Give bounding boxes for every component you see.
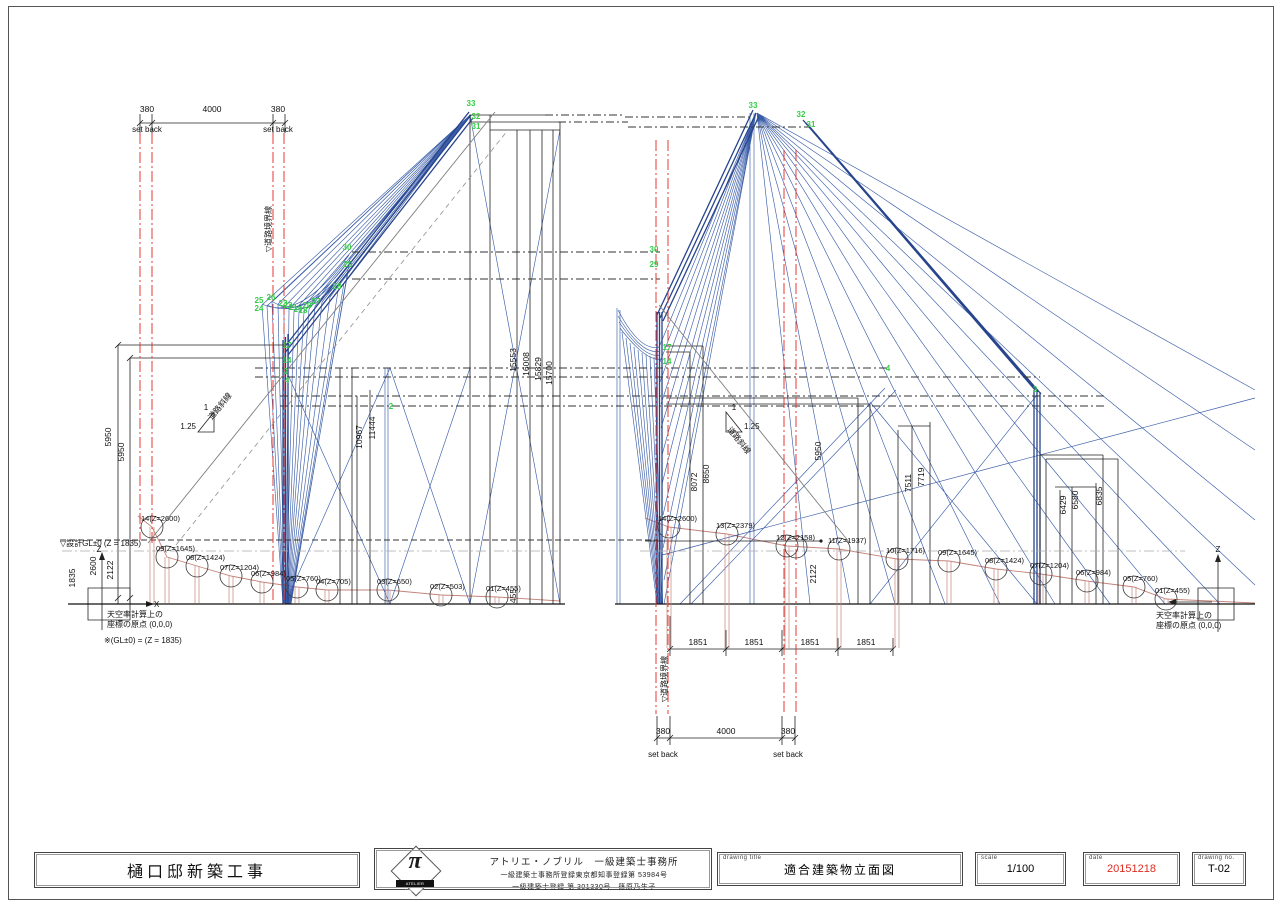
office-info: アトリエ・ノブリル 一級建築士事務所 一級建築士事務所登録東京都知事登録第 53…: [461, 852, 707, 892]
logo-banner: ATELIER NOMBRIL: [396, 880, 434, 887]
titleblock-scale-box: scale 1/100: [975, 852, 1066, 886]
titleblock-drawing-no-box: drawing no. T-02: [1192, 852, 1246, 886]
titleblock-drawing-title-box: drawing title 適合建築物立面図: [717, 852, 963, 886]
date-label: date: [1089, 855, 1103, 861]
scale-label: scale: [981, 855, 998, 861]
project-title: 樋口邸新築工事: [35, 853, 359, 887]
office-logo: π ATELIER NOMBRIL: [391, 846, 439, 894]
drawing-title-label: drawing title: [723, 855, 762, 861]
drawing-no-label: drawing no.: [1198, 855, 1235, 861]
sheet-border: [8, 6, 1274, 900]
drawing-sheet: 14(Z=2600)09(Z=1645)08(Z=1424)07(Z=1204)…: [0, 0, 1282, 906]
titleblock-date-box: date 20151218: [1083, 852, 1180, 886]
office-registration-1: 一級建築士事務所登録東京都知事登録第 53984号: [461, 870, 707, 880]
office-name: アトリエ・ノブリル 一級建築士事務所: [461, 854, 707, 868]
titleblock-project-box: 樋口邸新築工事: [34, 852, 360, 888]
titleblock-office-box: π ATELIER NOMBRIL アトリエ・ノブリル 一級建築士事務所 一級建…: [374, 848, 712, 890]
logo-pi-icon: π: [391, 848, 439, 875]
office-registration-2: 一級建築士登録 第 301330号 篠原乃生子: [461, 882, 707, 892]
